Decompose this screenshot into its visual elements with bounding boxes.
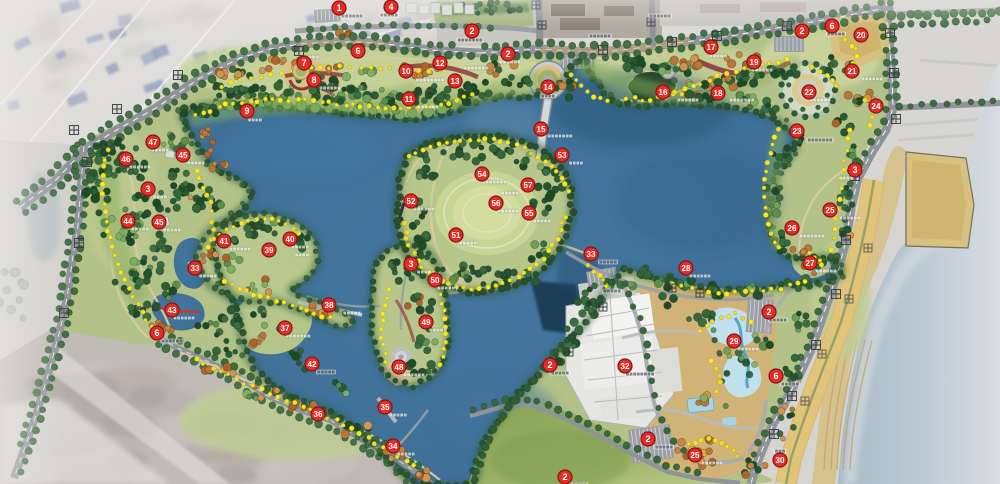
- svg-text:25: 25: [826, 206, 835, 215]
- svg-text:2: 2: [766, 307, 771, 317]
- svg-text:49: 49: [422, 318, 431, 327]
- svg-text:26: 26: [788, 224, 797, 233]
- svg-text:42: 42: [308, 360, 317, 369]
- svg-text:14: 14: [544, 83, 553, 92]
- svg-text:53: 53: [558, 151, 567, 160]
- svg-text:34: 34: [389, 442, 398, 451]
- svg-text:54: 54: [478, 170, 487, 179]
- svg-text:48: 48: [395, 363, 404, 372]
- svg-text:55: 55: [525, 209, 534, 218]
- svg-text:41: 41: [220, 237, 229, 246]
- svg-text:40: 40: [286, 235, 295, 244]
- svg-text:29: 29: [730, 337, 739, 346]
- svg-text:52: 52: [407, 197, 416, 206]
- svg-text:10: 10: [402, 67, 411, 76]
- svg-text:47: 47: [149, 138, 158, 147]
- svg-text:19: 19: [750, 58, 759, 67]
- svg-text:20: 20: [857, 31, 866, 40]
- svg-text:2: 2: [505, 49, 510, 59]
- svg-text:6: 6: [154, 328, 159, 338]
- svg-text:3: 3: [145, 184, 150, 194]
- svg-text:45: 45: [155, 218, 164, 227]
- svg-text:2: 2: [645, 434, 650, 444]
- svg-text:12: 12: [436, 59, 445, 68]
- svg-text:37: 37: [281, 324, 290, 333]
- svg-text:11: 11: [405, 95, 414, 104]
- svg-text:6: 6: [773, 371, 778, 381]
- svg-text:16: 16: [659, 88, 668, 97]
- svg-text:22: 22: [805, 88, 814, 97]
- svg-text:32: 32: [621, 362, 630, 371]
- svg-text:45: 45: [179, 151, 188, 160]
- svg-text:21: 21: [848, 67, 857, 76]
- svg-text:39: 39: [265, 246, 274, 255]
- svg-text:2: 2: [799, 26, 804, 36]
- svg-text:3: 3: [852, 165, 857, 175]
- svg-text:24: 24: [872, 102, 881, 111]
- svg-text:2: 2: [469, 26, 474, 36]
- svg-text:13: 13: [451, 77, 460, 86]
- svg-text:8: 8: [311, 75, 316, 85]
- svg-text:18: 18: [714, 89, 723, 98]
- svg-text:38: 38: [325, 301, 334, 310]
- svg-text:35: 35: [381, 403, 390, 412]
- svg-text:1: 1: [336, 3, 341, 13]
- svg-text:23: 23: [793, 127, 802, 136]
- svg-text:44: 44: [124, 217, 133, 226]
- svg-text:2: 2: [562, 472, 567, 482]
- svg-text:6: 6: [829, 21, 834, 31]
- svg-text:28: 28: [682, 264, 691, 273]
- svg-text:7: 7: [301, 58, 306, 68]
- svg-text:2: 2: [547, 360, 552, 370]
- svg-text:15: 15: [537, 125, 546, 134]
- svg-text:17: 17: [707, 43, 716, 52]
- svg-text:25: 25: [691, 451, 700, 460]
- svg-text:3: 3: [408, 259, 413, 269]
- svg-text:9: 9: [244, 106, 249, 116]
- svg-text:30: 30: [776, 456, 785, 465]
- svg-text:46: 46: [122, 155, 131, 164]
- svg-text:6: 6: [355, 46, 360, 56]
- svg-text:27: 27: [806, 259, 815, 268]
- svg-text:36: 36: [314, 410, 323, 419]
- svg-text:33: 33: [587, 250, 596, 259]
- svg-text:57: 57: [524, 181, 533, 190]
- svg-text:43: 43: [168, 306, 177, 315]
- svg-text:51: 51: [452, 231, 461, 240]
- svg-text:4: 4: [388, 2, 393, 12]
- svg-text:33: 33: [191, 264, 200, 273]
- svg-text:50: 50: [431, 276, 440, 285]
- svg-text:56: 56: [492, 199, 501, 208]
